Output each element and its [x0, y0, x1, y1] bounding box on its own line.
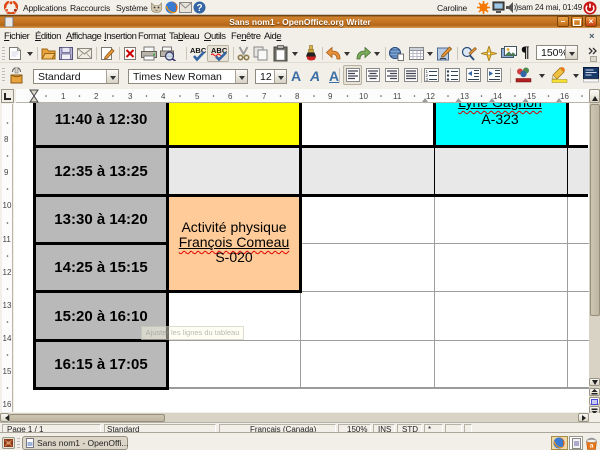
svg-text:?: ?: [197, 3, 203, 14]
svg-text:a: a: [590, 443, 594, 450]
svg-text:ABC: ABC: [190, 46, 207, 55]
